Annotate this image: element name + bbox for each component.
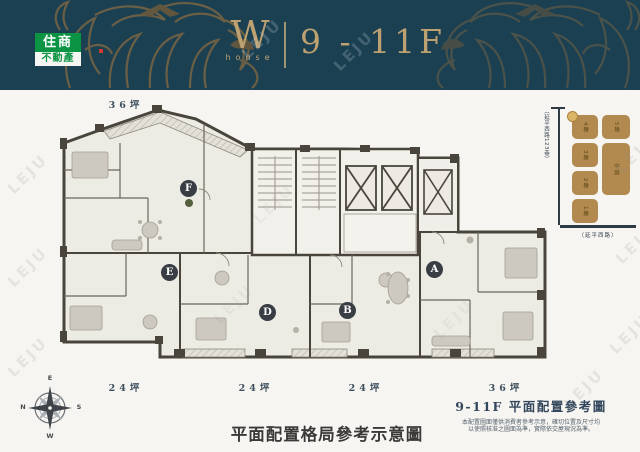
balcony-strip (432, 349, 494, 357)
site-block-label: 5棟 (612, 122, 620, 133)
area-label-bottom-1: 24坪 (86, 380, 166, 394)
unit-badge-f: F (180, 180, 197, 197)
compass-letter-top: E (45, 374, 55, 382)
site-road-line (558, 107, 560, 225)
area-label-bottom-4: 36坪 (466, 380, 546, 394)
compass-rose (26, 384, 74, 432)
balcony-strip (292, 349, 347, 357)
footer-reference-title: 9-11F 平面配置參考圖 (430, 396, 632, 415)
site-street-lane-label: （延平西路123巷） (542, 108, 550, 226)
site-block-label: 4棟 (581, 122, 589, 133)
flyer-page: 住商 不動產 W house 9 - 11F LEJU LEJU (0, 0, 640, 452)
unit-badge-a: A (426, 261, 443, 278)
area-label-bottom-3: 24坪 (326, 380, 406, 394)
unit-badge-b: B (339, 302, 356, 319)
footer-disclaimer-line1: 本配置圖面僅供消費者參考示意，確切位置及尺寸均 (430, 419, 632, 426)
site-road-line-bottom (560, 225, 636, 228)
compass-letter-right: S (74, 403, 84, 411)
footer-reference-block: 9-11F 平面配置參考圖 本配置圖面僅供消費者參考示意，確切位置及尺寸均 以使… (430, 396, 632, 433)
site-road-tick (551, 107, 565, 109)
plan-marker-dot (185, 199, 193, 207)
footer-disclaimer-line2: 以使照核准之圖面為準，實際依交屋現況為準。 (430, 426, 632, 433)
elevator-icon (424, 170, 452, 214)
balcony-strip (183, 349, 245, 357)
compass-letter-left: N (18, 403, 28, 411)
compass-letter-bottom: W (45, 432, 55, 440)
site-block: 2棟 (572, 171, 598, 195)
area-label-bottom-2: 24坪 (216, 380, 296, 394)
footer-main-title: 平面配置格局參考示意圖 (227, 421, 427, 445)
site-marker (567, 111, 578, 122)
site-block-label: 3棟 (581, 150, 589, 161)
site-block: 1棟 (572, 199, 598, 223)
unit-badge-e: E (161, 264, 178, 281)
unit-badge-d: D (259, 304, 276, 321)
footer-disclaimer: 本配置圖面僅供消費者參考示意，確切位置及尺寸均 以使照核准之圖面為準，實際依交屋… (430, 419, 632, 433)
site-block-label: 1棟 (581, 206, 589, 217)
site-block: 5棟 (602, 115, 630, 139)
area-label-top: 36坪 (86, 97, 166, 111)
site-block-label: 2棟 (581, 178, 589, 189)
site-block: 3棟 (572, 143, 598, 167)
